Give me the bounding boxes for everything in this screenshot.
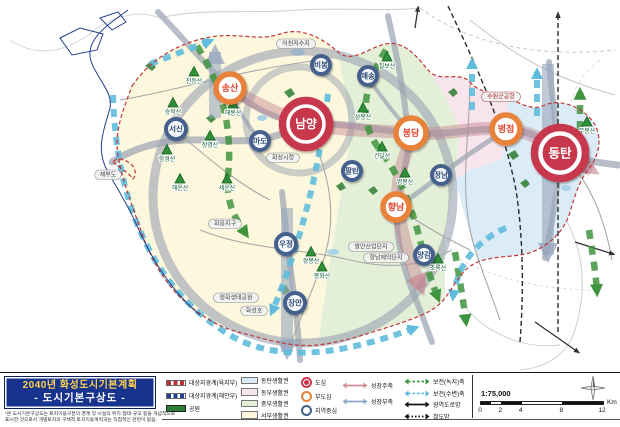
node-jiyeok: 마도 — [251, 132, 269, 150]
scale-ticks: 024812 — [480, 407, 604, 416]
svg-text:천등산: 천등산 — [186, 77, 203, 85]
legend-network-axes: 보전(녹지)축보전(수변)축광역도로망철도망 — [404, 377, 465, 421]
facility-label: 화성호 — [241, 306, 268, 316]
scale-bar-segment — [562, 402, 603, 404]
facility-label: 발안산업단지 — [348, 242, 393, 252]
facility-label: 화성시청 — [267, 153, 300, 163]
scale-tick: 12 — [598, 407, 605, 414]
scale-tick: 4 — [519, 407, 523, 414]
legend-item-label: 도심 — [315, 378, 326, 387]
legend-item-label: 대상지경계(해안부) — [189, 391, 237, 400]
legend-item-label: 보전(수변)축 — [433, 389, 465, 398]
node-budosim: 송산 — [216, 74, 244, 102]
svg-text:마도: 마도 — [253, 136, 267, 146]
node-jiyeok: 우정 — [276, 234, 296, 254]
svg-text:남양: 남양 — [295, 117, 317, 131]
svg-text:쌍봉산: 쌍봉산 — [303, 257, 320, 265]
scale-area: 1:75,000 024812 Km — [478, 375, 618, 420]
axis-arrow-icon — [404, 400, 430, 409]
legend-item-label: 부도심 — [315, 392, 332, 401]
svg-text:해운산: 해운산 — [172, 184, 189, 192]
svg-text:세운산: 세운산 — [219, 184, 236, 192]
svg-text:장안: 장안 — [288, 298, 302, 308]
svg-text:화성호: 화성호 — [246, 307, 263, 315]
node-jiyeok: 팔탄 — [343, 162, 361, 180]
scale-bar-segment — [481, 402, 491, 404]
node-jiyeok: 서신 — [166, 119, 186, 139]
legend-item: 보전(녹지)축 — [404, 377, 465, 386]
svg-text:함경산: 함경산 — [159, 155, 176, 163]
scale-bar — [480, 401, 604, 405]
legend-growth-axes: 성장주축성장부축 — [342, 381, 393, 406]
svg-text:봉화산: 봉화산 — [314, 272, 331, 280]
svg-text:송산: 송산 — [222, 82, 239, 93]
legend-boundaries: 대상지경계(육지부)대상지경계(해안부)공원 — [166, 378, 237, 413]
scale-bar-segment — [522, 402, 563, 404]
svg-text:칠보산: 칠보산 — [379, 62, 396, 70]
legend-item-label: 대상지경계(육지부) — [189, 378, 237, 387]
jiyeok-icon — [301, 405, 312, 416]
legend-item: 철도망 — [404, 412, 465, 421]
legend-item-label: 동탄생활권 — [261, 376, 289, 385]
svg-text:서신: 서신 — [169, 124, 183, 134]
legend-item-label: 철도망 — [433, 412, 450, 421]
legend-item: 도심 — [301, 377, 337, 388]
legend-item: 광역도로망 — [404, 400, 465, 409]
concept-map: 어천저수지수원군공항화성시청제부도화옹지구평화생태공원화성호발안산업단지향남제약… — [0, 0, 620, 372]
legend-item-label: 성장부축 — [371, 397, 393, 406]
svg-text:병점: 병점 — [498, 123, 515, 134]
legend-item: 공원 — [166, 404, 237, 413]
plan-title-block: 2040년 화성도시기본계획 - 도시기본구상도 - — [4, 376, 156, 409]
node-budosim: 향남 — [383, 194, 409, 220]
svg-text:명봉산: 명봉산 — [397, 178, 414, 186]
legend-item: 보전(수변)축 — [404, 389, 465, 398]
scale-bar-segment — [491, 402, 501, 404]
svg-text:발안산업단지: 발안산업단지 — [354, 243, 387, 251]
facility-label: 수원군공항 — [482, 92, 521, 102]
svg-text:양감: 양감 — [417, 250, 431, 260]
svg-text:봉담: 봉담 — [403, 127, 420, 138]
axis-arrow-icon — [342, 397, 368, 406]
boundary-swatch — [166, 393, 186, 399]
compass-icon — [580, 375, 606, 401]
node-budosim: 봉담 — [396, 118, 426, 148]
legend-item-label: 성장주축 — [371, 381, 393, 390]
map-area: 어천저수지수원군공항화성시청제부도화옹지구평화생태공원화성호발안산업단지향남제약… — [0, 0, 620, 372]
svg-text:삼봉산: 삼봉산 — [355, 113, 372, 121]
legend-item: 부도심 — [301, 391, 337, 402]
legend-item: 동탄생활권 — [241, 376, 289, 385]
zone-swatch — [241, 388, 258, 396]
axis-arrow-icon — [404, 412, 430, 421]
node-budosim: 병점 — [492, 115, 520, 143]
scale-tick: 0 — [478, 407, 482, 414]
zone-swatch — [241, 377, 258, 385]
svg-text:승학산: 승학산 — [165, 108, 182, 116]
svg-text:화옹지구: 화옹지구 — [214, 220, 237, 228]
dosim-icon — [301, 377, 312, 388]
scale-tick: 8 — [560, 407, 564, 414]
legend-item: 성장주축 — [342, 381, 393, 390]
legend-item: 대상지경계(해안부) — [166, 391, 237, 400]
svg-text:정남: 정남 — [434, 170, 448, 180]
park-swatch — [166, 405, 186, 412]
legend-item: 중부생활권 — [241, 399, 289, 408]
legend-zones: 동탄생활권동부생활권중부생활권서부생활권 — [241, 376, 289, 420]
scale-ratio: 1:75,000 — [481, 389, 511, 398]
legend-item: 동부생활권 — [241, 388, 289, 397]
zone-swatch — [241, 411, 258, 419]
svg-text:화성시청: 화성시청 — [272, 154, 294, 162]
svg-text:어천저수지: 어천저수지 — [282, 40, 310, 48]
screenshot-root: 어천저수지수원군공항화성시청제부도화옹지구평화생태공원화성호발안산업단지향남제약… — [0, 0, 620, 427]
legend-bar: 2040년 화성도시기본계획 - 도시기본구상도 - *본 도시기본구상도는 토… — [0, 372, 620, 427]
legend-item-label: 광역도로망 — [433, 400, 461, 409]
node-jiyeok: 장안 — [285, 293, 305, 313]
svg-text:향남: 향남 — [388, 201, 405, 212]
node-dosim: 남양 — [283, 101, 330, 148]
svg-text:수원군공항: 수원군공항 — [487, 93, 515, 101]
zone-swatch — [241, 400, 258, 408]
svg-text:청명산: 청명산 — [202, 141, 219, 149]
legend-item: 지역중심 — [301, 405, 337, 416]
svg-text:비봉: 비봉 — [314, 60, 328, 70]
facility-label: 평화생태공원 — [213, 293, 258, 303]
legend-divider — [472, 375, 473, 418]
legend-item-label: 동부생활권 — [261, 388, 289, 397]
node-dosim: 동탄 — [535, 128, 586, 179]
axis-arrow-icon — [404, 389, 430, 398]
facility-label: 제부도 — [95, 170, 122, 180]
svg-text:평화생태공원: 평화생태공원 — [219, 294, 252, 302]
svg-text:건달산: 건달산 — [374, 152, 391, 160]
facility-label: 어천저수지 — [277, 39, 316, 49]
legend-item: 서부생활권 — [241, 411, 289, 420]
scale-bar-segment — [501, 402, 521, 404]
legend-item-label: 중부생활권 — [261, 399, 289, 408]
svg-text:초록산: 초록산 — [430, 264, 447, 272]
svg-text:해봉산: 해봉산 — [225, 109, 242, 117]
svg-text:동탄: 동탄 — [548, 145, 572, 160]
node-jiyeok: 매송 — [359, 67, 377, 85]
axis-arrow-icon — [342, 381, 368, 390]
svg-text:우정: 우정 — [279, 239, 293, 249]
legend-item: 대상지경계(육지부) — [166, 378, 237, 387]
axis-arrow-icon — [404, 377, 430, 386]
budosim-icon — [301, 391, 312, 402]
legend-centers: 도심부도심지역중심 — [301, 377, 337, 416]
node-jiyeok: 비봉 — [312, 56, 330, 74]
scale-tick: 2 — [499, 407, 503, 414]
legend-item-label: 공원 — [189, 404, 200, 413]
legend-item: 성장부축 — [342, 397, 393, 406]
svg-text:팔탄: 팔탄 — [345, 166, 359, 176]
facility-label: 향남제약단지 — [363, 253, 408, 263]
boundary-swatch — [166, 380, 186, 386]
disclaimer-note: *본 도시기본구상도는 토지이용구분의 경계 및 시설의 위치·형태·규모 등을… — [5, 412, 180, 425]
scale-unit: Km — [607, 399, 617, 406]
plan-title: 2040년 화성도시기본계획 — [23, 380, 138, 393]
node-jiyeok: 양감 — [415, 246, 433, 264]
legend-item-label: 서부생활권 — [261, 411, 289, 420]
disclaimer-line2: 표시한 것으로서 개별토지의 구체적 토지이용계획과는 직접적인 관련이 없음. — [5, 418, 180, 424]
legend-item-label: 지역중심 — [315, 406, 337, 415]
plan-subtitle: - 도시기본구상도 - — [34, 392, 125, 405]
legend-item-label: 보전(녹지)축 — [433, 377, 465, 386]
node-jiyeok: 정남 — [432, 166, 450, 184]
facility-label: 화옹지구 — [209, 219, 242, 229]
svg-text:매송: 매송 — [361, 71, 375, 81]
svg-text:제부도: 제부도 — [100, 171, 117, 179]
svg-text:향남제약단지: 향남제약단지 — [369, 254, 402, 262]
